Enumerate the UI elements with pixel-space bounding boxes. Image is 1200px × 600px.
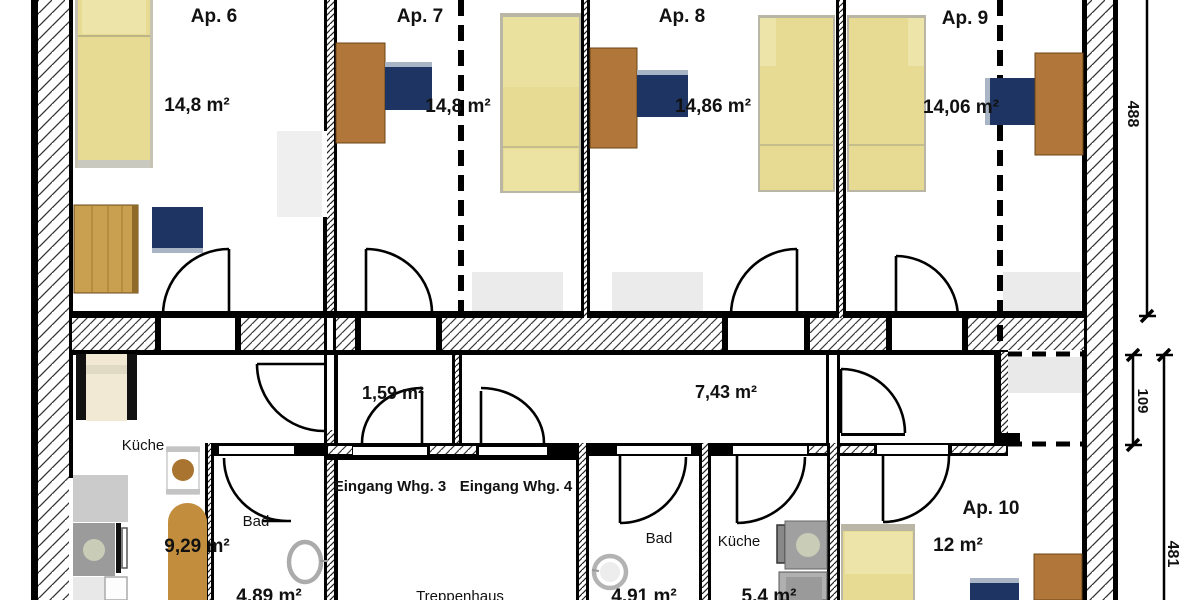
svg-text:488: 488: [1124, 101, 1141, 128]
svg-text:Bad: Bad: [243, 513, 270, 530]
svg-text:Küche: Küche: [122, 437, 165, 454]
svg-text:14,8 m²: 14,8 m²: [425, 96, 490, 117]
svg-text:Bad: Bad: [646, 530, 673, 547]
svg-text:Ap. 8: Ap. 8: [659, 6, 705, 27]
svg-text:14,06 m²: 14,06 m²: [923, 97, 999, 118]
svg-text:481: 481: [1164, 541, 1181, 568]
svg-text:Ap. 10: Ap. 10: [962, 498, 1019, 519]
svg-text:Ap. 9: Ap. 9: [942, 8, 988, 29]
svg-text:Küche: Küche: [718, 533, 761, 550]
svg-text:12 m²: 12 m²: [933, 535, 983, 556]
svg-text:4,91 m²: 4,91 m²: [611, 586, 676, 600]
svg-text:Ap. 7: Ap. 7: [397, 6, 443, 27]
svg-text:7,43 m²: 7,43 m²: [695, 382, 757, 402]
svg-text:14,8 m²: 14,8 m²: [164, 95, 229, 116]
svg-text:109: 109: [1134, 388, 1151, 413]
svg-text:Eingang Whg. 3: Eingang Whg. 3: [334, 478, 447, 495]
svg-text:Ap. 6: Ap. 6: [191, 6, 237, 27]
svg-text:5,4 m²: 5,4 m²: [742, 586, 797, 600]
svg-text:Treppenhaus: Treppenhaus: [416, 588, 504, 600]
svg-text:4,89 m²: 4,89 m²: [236, 586, 301, 600]
svg-text:14,86 m²: 14,86 m²: [675, 96, 751, 117]
svg-text:1,59 m²: 1,59 m²: [362, 383, 424, 403]
svg-text:9,29 m²: 9,29 m²: [164, 536, 229, 557]
svg-text:Eingang Whg. 4: Eingang Whg. 4: [460, 478, 573, 495]
